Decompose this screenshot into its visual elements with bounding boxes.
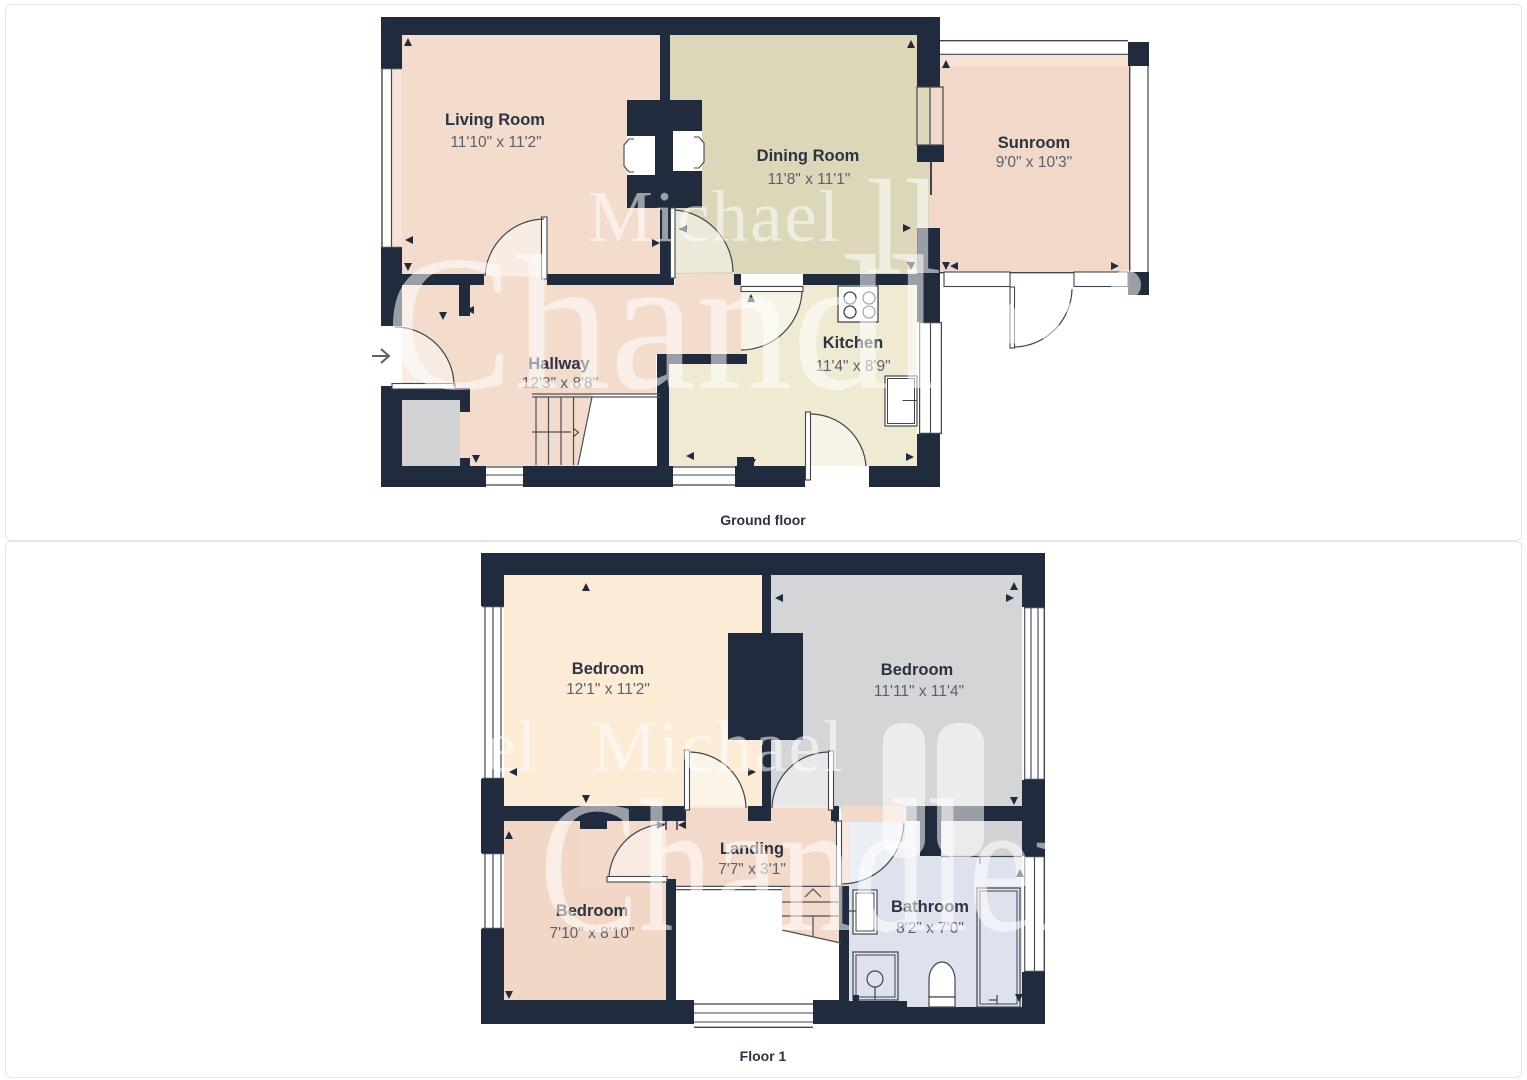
- svg-text:Floor 1: Floor 1: [740, 1048, 787, 1064]
- svg-text:Bedroom: Bedroom: [881, 661, 953, 679]
- svg-text:Chandler: Chandler: [385, 216, 1092, 430]
- svg-text:Sunroom: Sunroom: [998, 134, 1070, 152]
- svg-text:Bedroom: Bedroom: [572, 660, 644, 678]
- svg-text:12'1" x 11'2": 12'1" x 11'2": [566, 681, 650, 698]
- svg-text:Dining Room: Dining Room: [757, 147, 860, 165]
- svg-text:el: el: [484, 706, 537, 787]
- svg-text:9'0" x 10'3": 9'0" x 10'3": [996, 154, 1072, 171]
- svg-text:Ground floor: Ground floor: [720, 512, 806, 528]
- svg-text:11'11" x 11'4": 11'11" x 11'4": [874, 683, 964, 700]
- svg-text:Chandler: Chandler: [540, 761, 1083, 972]
- svg-text:Living Room: Living Room: [445, 111, 545, 129]
- svg-text:11'10" x 11'2": 11'10" x 11'2": [450, 134, 541, 151]
